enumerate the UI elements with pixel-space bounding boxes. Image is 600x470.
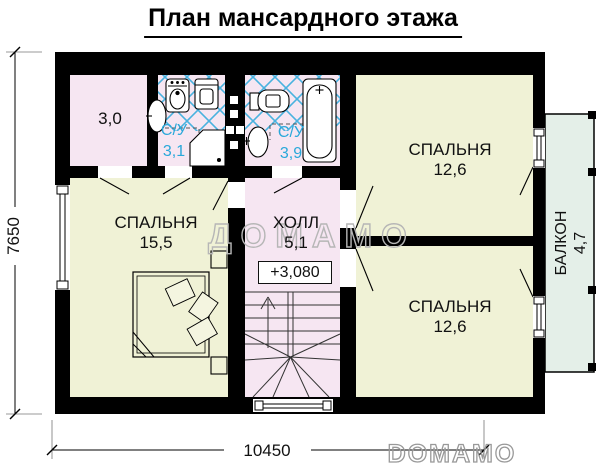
bedroom-bottom-label: СПАЛЬНЯ12,6: [408, 297, 491, 337]
balcony-door-bottom: [533, 296, 545, 338]
door-bedroom-left: [228, 182, 245, 208]
bidet-icon: [166, 79, 189, 112]
balcony-post: [588, 363, 596, 371]
hall-label: ХОЛЛ5,1: [273, 213, 319, 253]
balcony-label: БАЛКОН4,7: [552, 211, 590, 276]
bedroom-left-area: 15,5: [114, 233, 197, 253]
toilet-icon: [250, 90, 289, 112]
elevation-mark: +3,080: [258, 261, 332, 284]
bath2-area: 3,9: [278, 143, 304, 164]
floor-plan-page: ДОМАМО DOMAMO План мансардного этажа 3,0…: [0, 0, 600, 470]
bath2-label: С/У3,9: [278, 122, 304, 164]
door-bedroom-bottom: [340, 249, 356, 287]
toilet-icon: [195, 79, 218, 109]
window-bottom: [253, 399, 333, 412]
balcony-door-top: [533, 128, 545, 168]
storage-area-label: 3,0: [98, 109, 122, 129]
bath1-label: С/У3,1: [161, 120, 187, 162]
bedroom-bottom-area: 12,6: [408, 317, 491, 337]
bathtub-icon: [303, 79, 336, 162]
dimension-height-value: 7650: [4, 217, 24, 255]
room-bedroom-left: [70, 178, 228, 397]
bedroom-top-label: СПАЛЬНЯ12,6: [408, 140, 491, 180]
door-bath1: [165, 166, 192, 178]
balcony-area: 4,7: [571, 211, 590, 276]
dimension-width-value: 10450: [243, 441, 290, 461]
bedroom-top-area: 12,6: [408, 160, 491, 180]
bedroom-left-label: СПАЛЬНЯ15,5: [114, 213, 197, 253]
watermark-corner: DOMAMO: [388, 440, 517, 468]
room-hall: [245, 178, 340, 397]
door-storage: [98, 166, 132, 178]
page-title: План мансардного этажа: [144, 4, 462, 38]
balcony-post: [588, 286, 596, 294]
balcony-post: [588, 111, 596, 119]
bath1-area: 3,1: [161, 141, 187, 162]
door-bath2: [272, 166, 302, 178]
window-left: [55, 185, 70, 290]
balcony-post: [588, 168, 596, 176]
hall-area: 5,1: [273, 233, 319, 253]
